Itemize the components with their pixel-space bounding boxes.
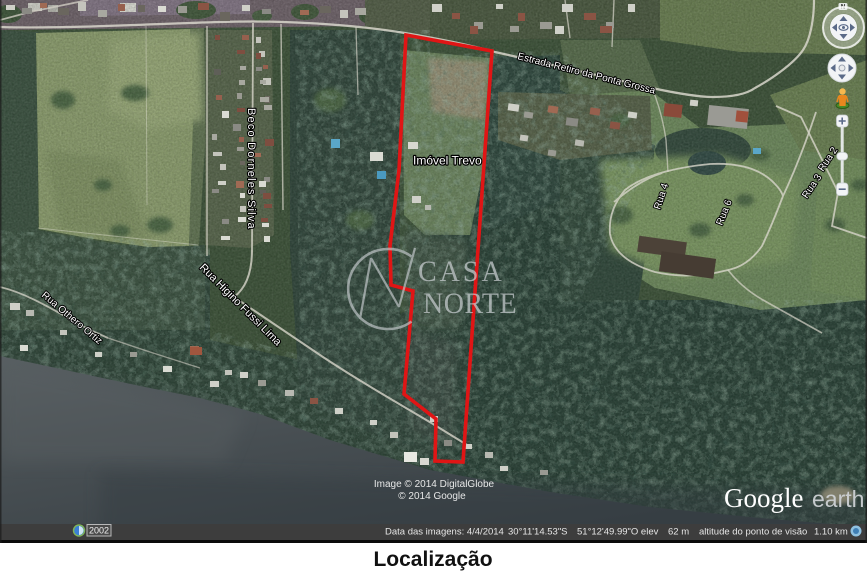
svg-text:Localização: Localização [373, 548, 492, 571]
svg-text:Google: Google [724, 483, 804, 513]
svg-text:30°11'14.53"S: 30°11'14.53"S [508, 527, 568, 538]
svg-text:© 2014 Google: © 2014 Google [398, 491, 466, 502]
svg-text:altitude do ponto de visão: altitude do ponto de visão [699, 527, 807, 538]
svg-text:Image © 2014 DigitalGlobe: Image © 2014 DigitalGlobe [374, 479, 495, 490]
svg-text:51°12'49.99"O elev: 51°12'49.99"O elev [577, 527, 659, 538]
svg-text:CASA: CASA [418, 255, 505, 288]
svg-text:earth: earth [812, 486, 864, 512]
svg-text:2002: 2002 [89, 526, 109, 536]
svg-text:62 m: 62 m [668, 527, 689, 538]
svg-text:NORTE: NORTE [423, 287, 517, 320]
svg-text:1.10 km: 1.10 km [814, 527, 848, 538]
svg-text:Imóvel Trevo: Imóvel Trevo [413, 154, 482, 168]
svg-text:Data das imagens: 4/4/2014: Data das imagens: 4/4/2014 [385, 527, 504, 538]
svg-text:Beco Dorneles Silva: Beco Dorneles Silva [245, 108, 257, 230]
